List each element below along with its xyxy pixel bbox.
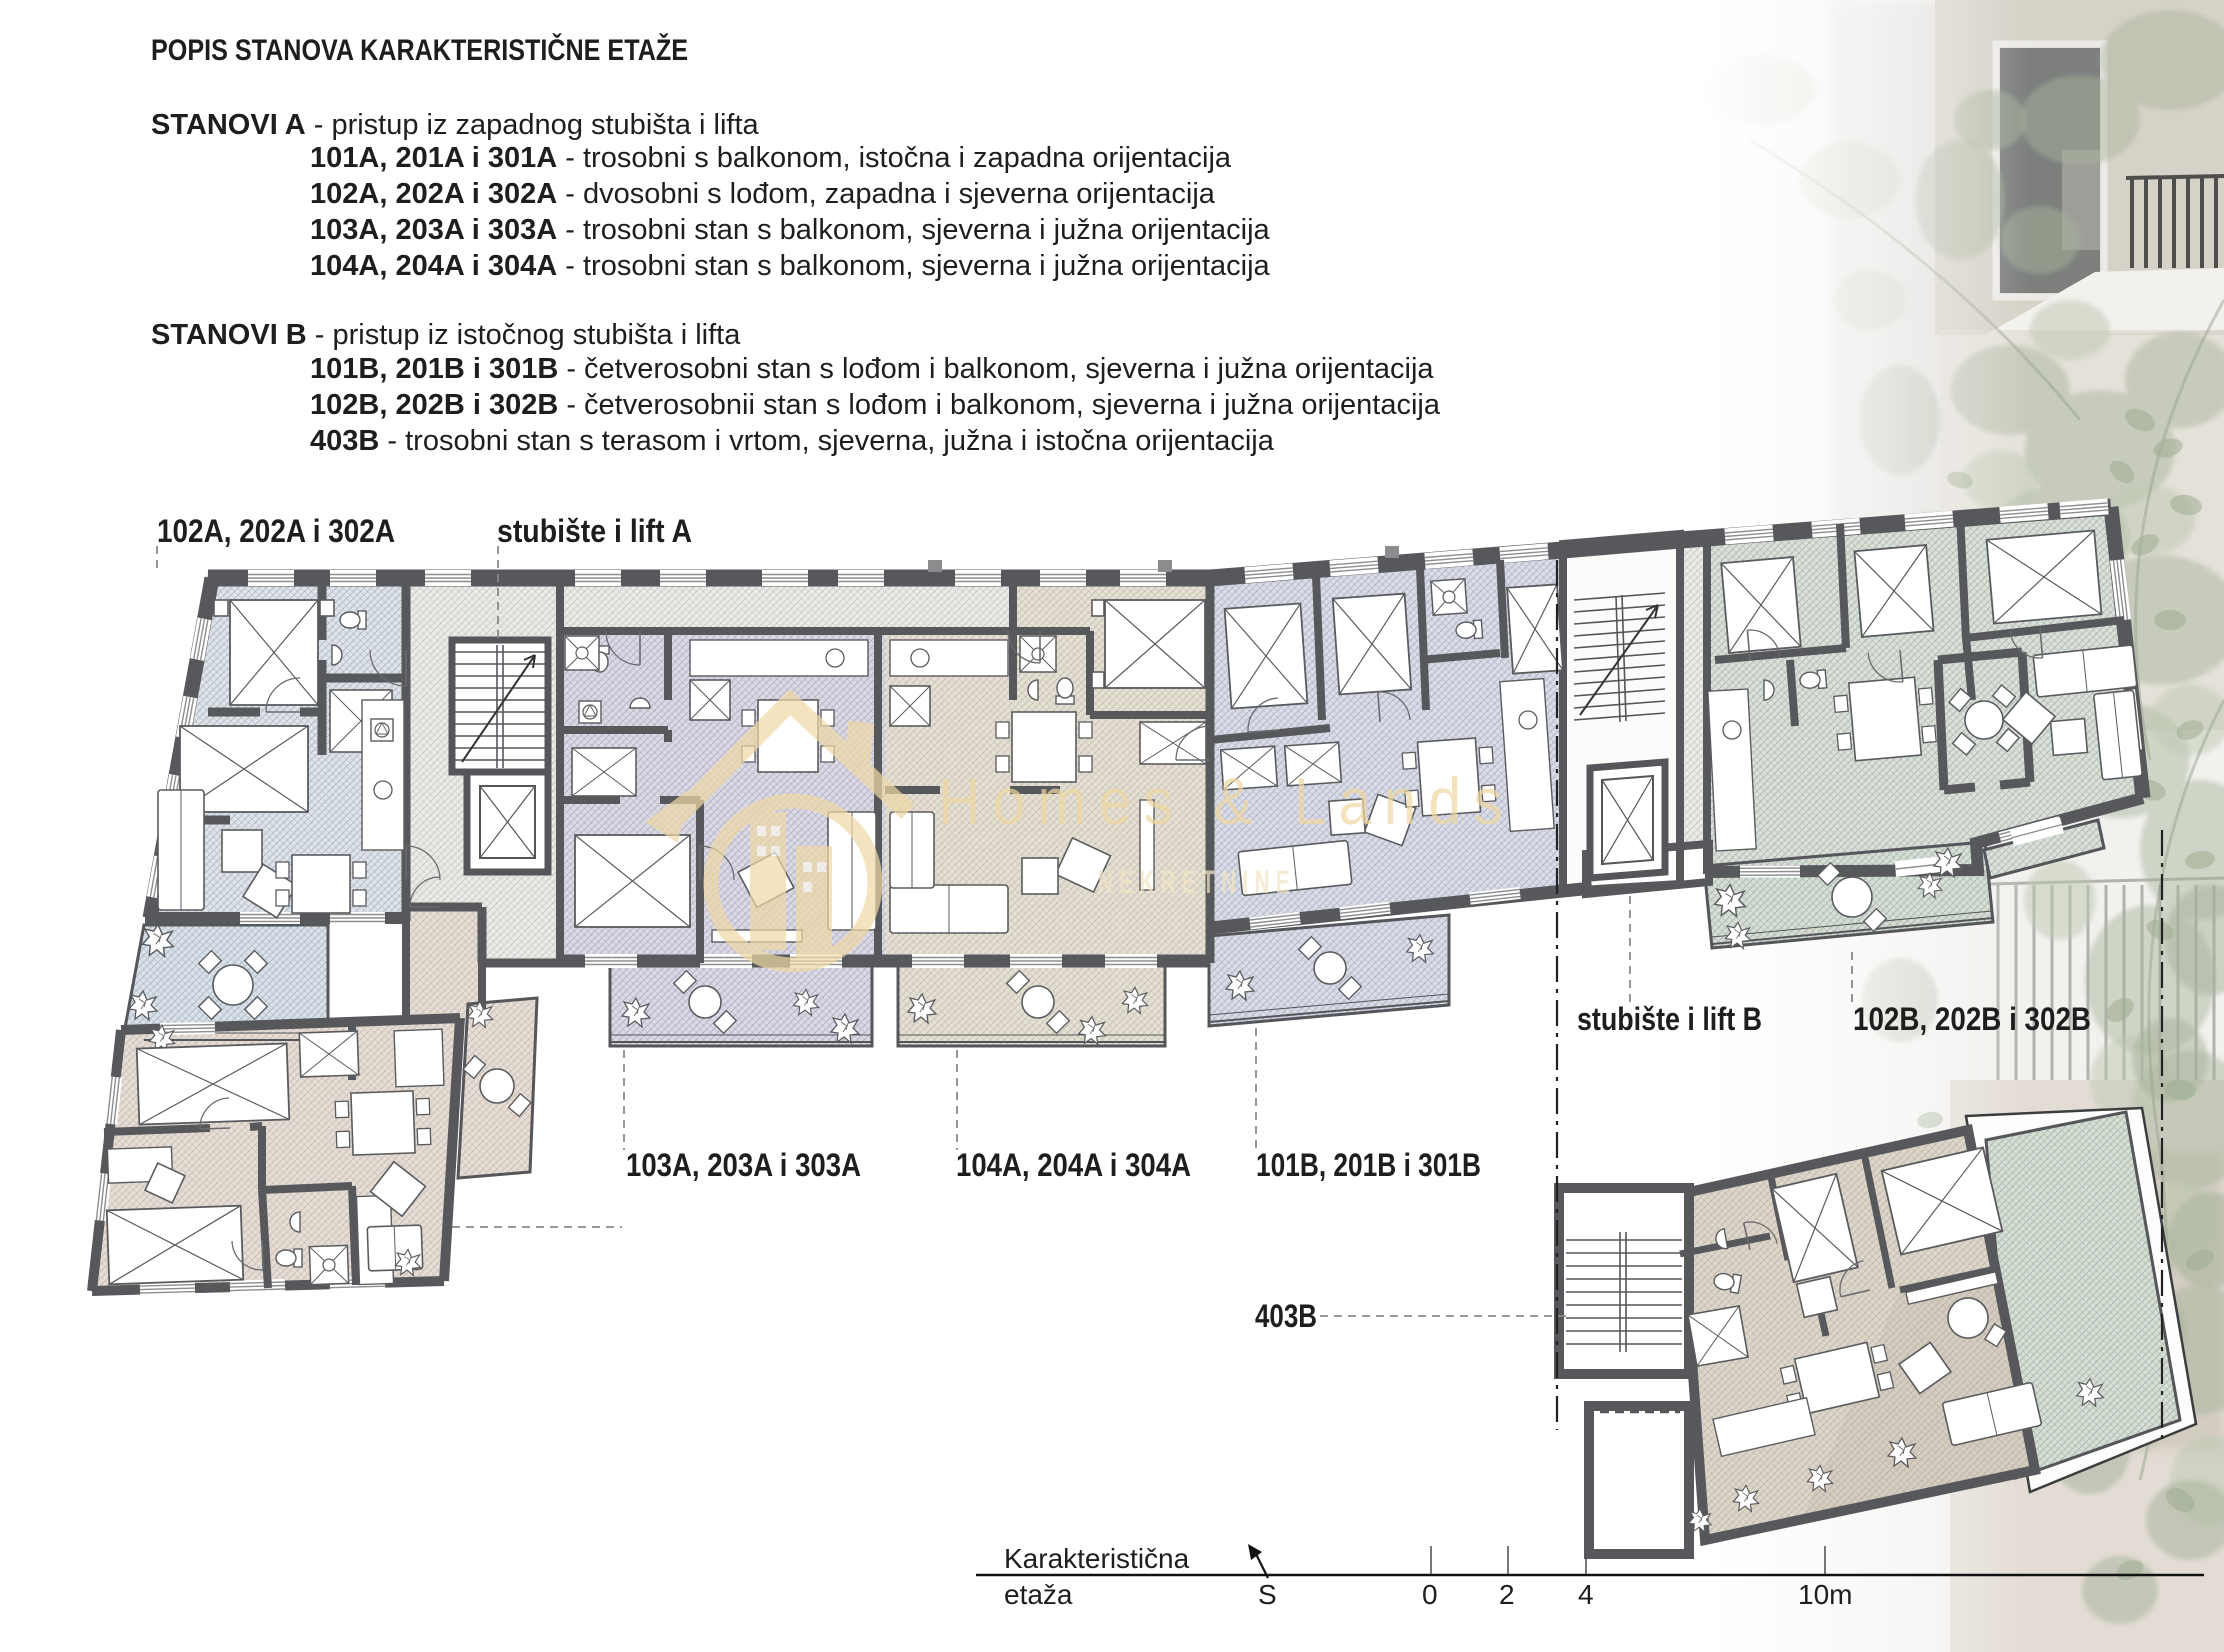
- svg-text:10m: 10m: [1798, 1579, 1852, 1610]
- svg-text:103A, 203A i 303A: 103A, 203A i 303A: [626, 1147, 861, 1183]
- svg-text:stubište i lift B: stubište i lift B: [1577, 1001, 1762, 1037]
- svg-text:403B: 403B: [1255, 1298, 1317, 1334]
- svg-text:STANOVI B - pristup iz istočno: STANOVI B - pristup iz istočnog stubišta…: [151, 319, 741, 351]
- svg-text:NEKRETNINE: NEKRETNINE: [1098, 864, 1296, 900]
- svg-text:stubište i lift A: stubište i lift A: [497, 513, 692, 549]
- svg-text:S: S: [1258, 1579, 1277, 1610]
- svg-text:101A, 201A i 301A - trosobni s: 101A, 201A i 301A - trosobni s balkonom,…: [310, 142, 1232, 174]
- svg-text:101B, 201B i 301B - četverosob: 101B, 201B i 301B - četverosobni stan s …: [310, 353, 1434, 385]
- svg-text:2: 2: [1499, 1579, 1515, 1610]
- svg-text:101B, 201B i 301B: 101B, 201B i 301B: [1256, 1147, 1481, 1183]
- svg-text:104A, 204A i 304A: 104A, 204A i 304A: [956, 1147, 1191, 1183]
- svg-text:etaža: etaža: [1004, 1579, 1073, 1610]
- svg-text:POPIS STANOVA KARAKTERISTIČNE: POPIS STANOVA KARAKTERISTIČNE ETAŽE: [151, 33, 688, 67]
- svg-text:104A, 204A i 304A - trosobni s: 104A, 204A i 304A - trosobni stan s balk…: [310, 250, 1271, 282]
- svg-text:102A, 202A i 302A - dvosobni s: 102A, 202A i 302A - dvosobni s lođom, za…: [310, 178, 1216, 210]
- svg-text:Karakteristična: Karakteristična: [1004, 1543, 1190, 1574]
- svg-text:102B, 202B i 302B: 102B, 202B i 302B: [1853, 1001, 2091, 1037]
- svg-text:403B - trosobni stan s terasom: 403B - trosobni stan s terasom i vrtom, …: [310, 425, 1275, 457]
- svg-text:STANOVI A - pristup iz zapadno: STANOVI A - pristup iz zapadnog stubišta…: [151, 109, 759, 141]
- svg-text:102A, 202A i 302A: 102A, 202A i 302A: [157, 513, 395, 549]
- svg-text:102B, 202B i 302B - četverosob: 102B, 202B i 302B - četverosobnii stan s…: [310, 389, 1441, 421]
- svg-text:4: 4: [1578, 1579, 1594, 1610]
- svg-text:Homes & Lands: Homes & Lands: [938, 764, 1515, 838]
- svg-text:0: 0: [1422, 1579, 1438, 1610]
- svg-text:103A, 203A i 303A - trosobni s: 103A, 203A i 303A - trosobni stan s balk…: [310, 214, 1271, 246]
